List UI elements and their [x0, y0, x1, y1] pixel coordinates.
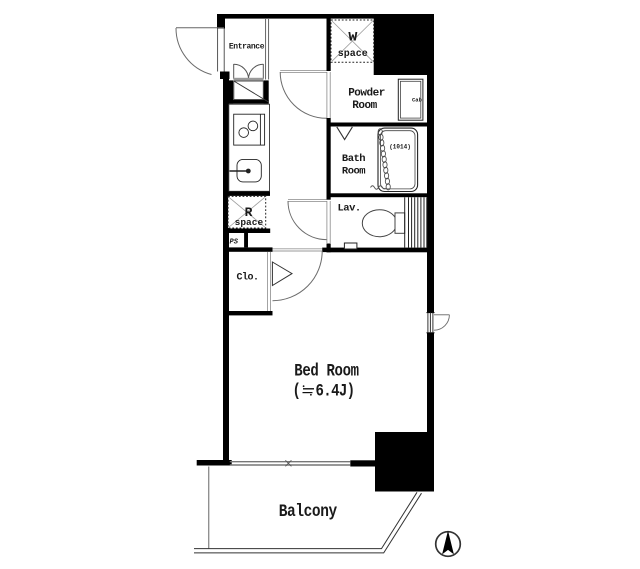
svg-text:(: (: [293, 381, 301, 401]
svg-text:space: space: [338, 49, 368, 60]
svg-text:space: space: [235, 217, 264, 228]
svg-text:(1014): (1014): [389, 144, 411, 151]
svg-text:Bed Room: Bed Room: [294, 361, 358, 381]
svg-text:Entrance: Entrance: [229, 43, 265, 52]
svg-text:PS: PS: [230, 239, 239, 247]
svg-text:Balcony: Balcony: [279, 502, 338, 522]
svg-text:Cab: Cab: [412, 97, 423, 104]
svg-text:Bath: Bath: [342, 153, 365, 165]
svg-text:Room: Room: [342, 166, 365, 178]
svg-text:Clo.: Clo.: [236, 272, 258, 284]
svg-text:Powder: Powder: [348, 88, 385, 100]
svg-text:6.4J): 6.4J): [316, 381, 355, 401]
svg-text:W: W: [348, 30, 358, 45]
svg-text:Room: Room: [352, 100, 377, 112]
svg-text:Lav.: Lav.: [338, 203, 361, 215]
